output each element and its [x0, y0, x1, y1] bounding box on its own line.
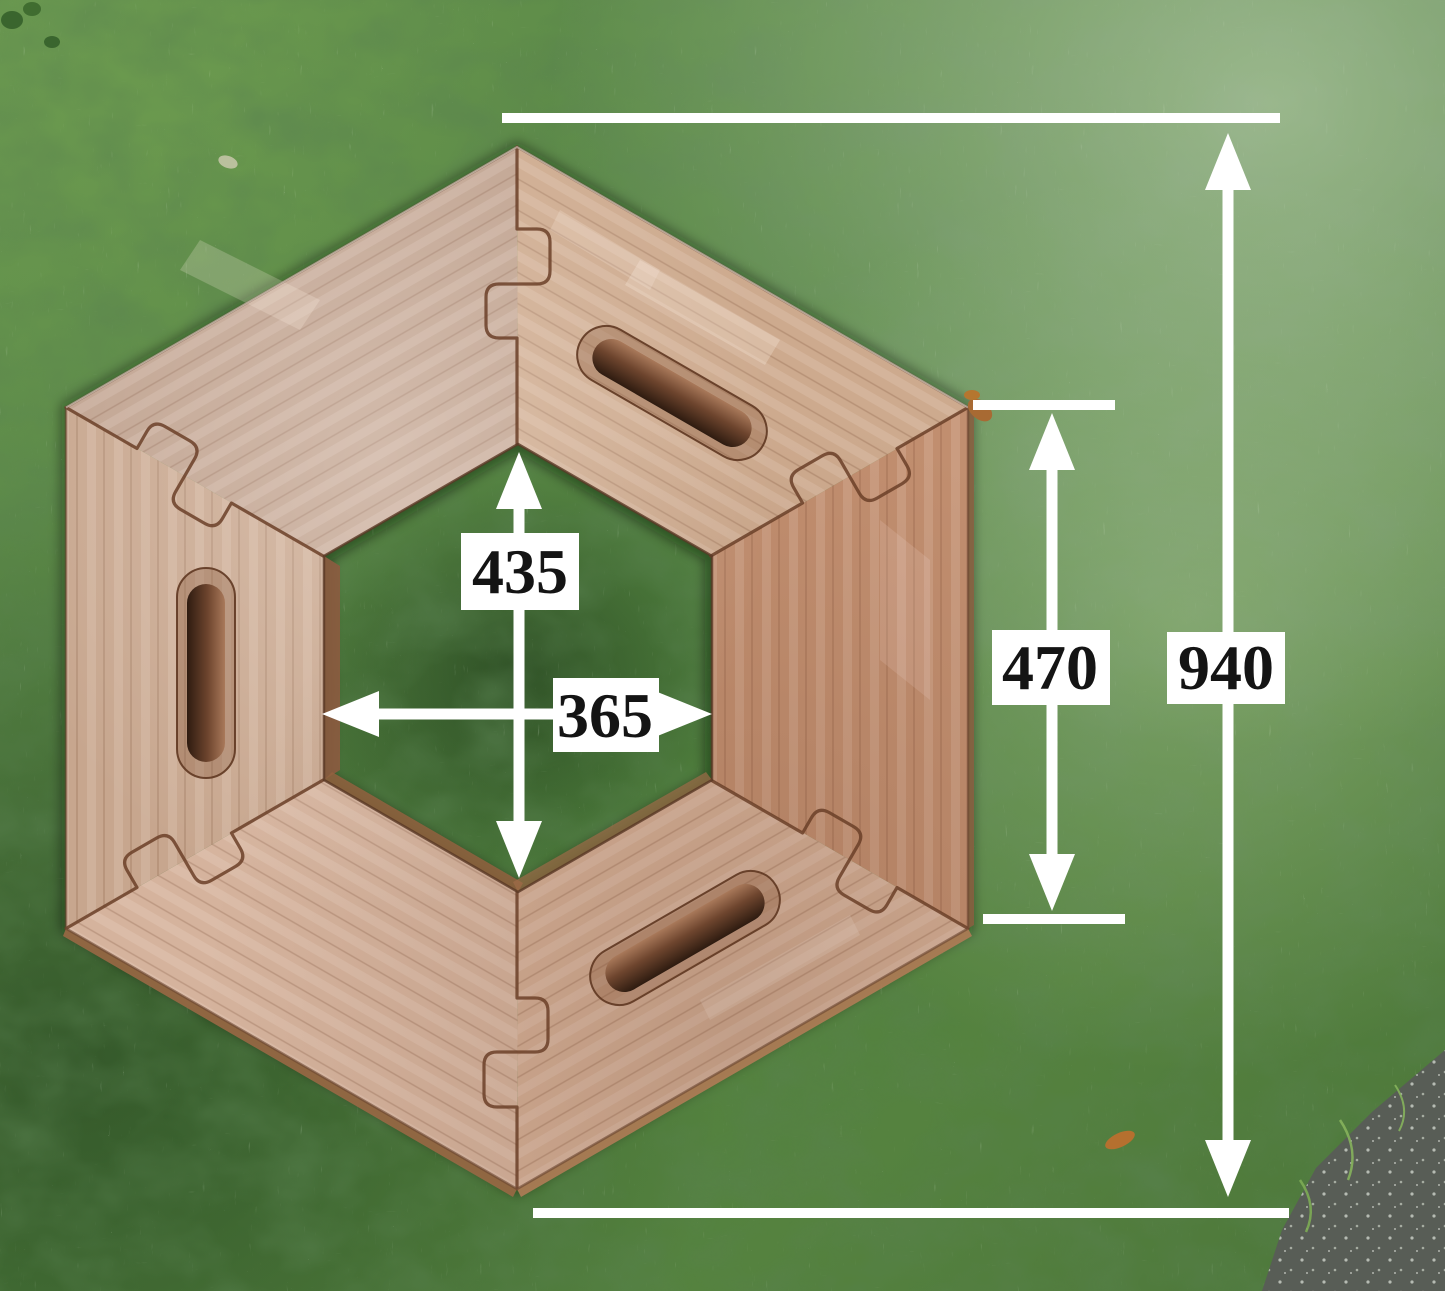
overall-label: 940 — [1167, 632, 1285, 704]
inner-height-label: 435 — [461, 533, 579, 610]
handle-slot-w — [177, 568, 235, 778]
photo-canvas: 435 365 470 940 — [0, 0, 1445, 1291]
right-span-value: 470 — [1002, 632, 1098, 703]
inner-width-label: 365 — [553, 678, 659, 752]
right-span-label: 470 — [992, 630, 1110, 705]
inner-height-value: 435 — [472, 536, 568, 607]
overall-value: 940 — [1178, 632, 1274, 703]
inner-width-value: 365 — [557, 680, 653, 751]
